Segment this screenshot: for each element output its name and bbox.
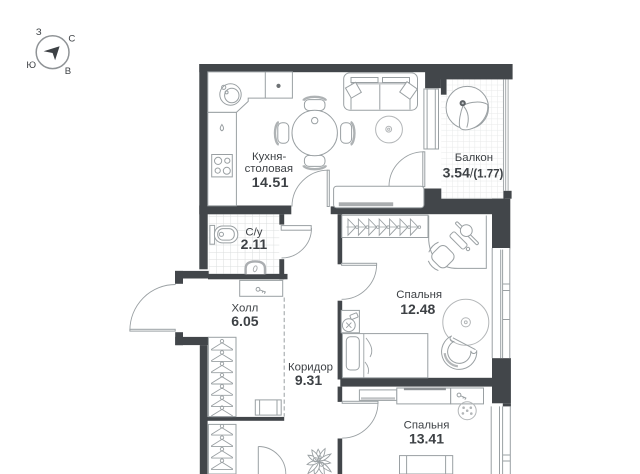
svg-text:12.48: 12.48 <box>400 301 435 317</box>
svg-text:6.05: 6.05 <box>231 313 258 329</box>
svg-text:9.31: 9.31 <box>295 372 322 388</box>
svg-text:13.41: 13.41 <box>409 430 444 446</box>
svg-text:14.51: 14.51 <box>252 175 289 191</box>
svg-text:Ю: Ю <box>26 60 36 71</box>
svg-text:З: З <box>36 27 42 38</box>
svg-text:столовая: столовая <box>245 163 293 175</box>
svg-text:2.11: 2.11 <box>241 236 268 252</box>
svg-text:С: С <box>68 34 75 45</box>
svg-text:В: В <box>65 66 71 77</box>
svg-text:Балкон: Балкон <box>455 152 493 164</box>
svg-text:Кухня-: Кухня- <box>252 151 286 163</box>
svg-text:Спальня: Спальня <box>396 289 442 301</box>
